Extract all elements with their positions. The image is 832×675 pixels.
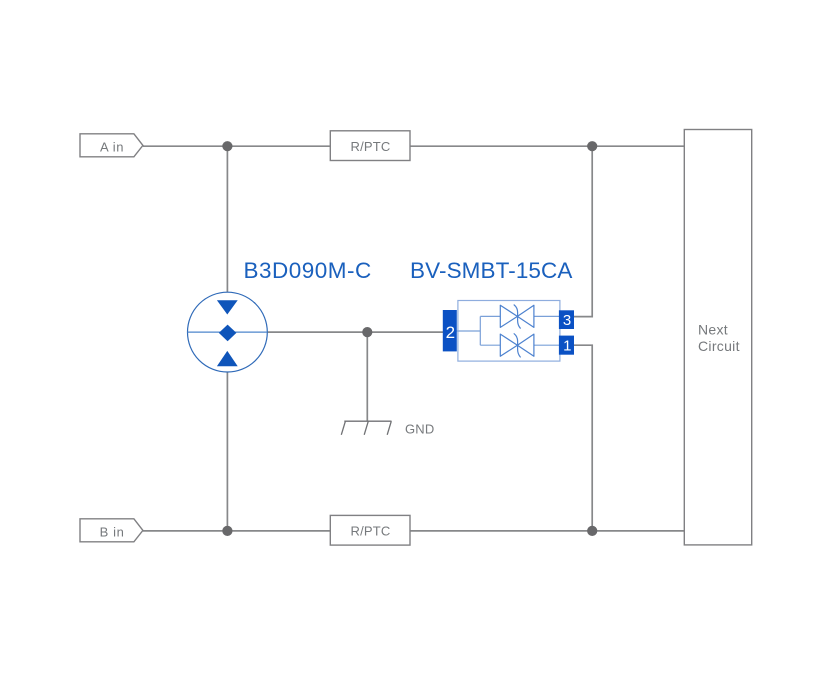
svg-text:B3D090M-C: B3D090M-C	[244, 258, 372, 283]
svg-text:Next: Next	[698, 322, 728, 338]
svg-text:R/PTC: R/PTC	[351, 523, 391, 538]
svg-text:B in: B in	[100, 525, 125, 540]
svg-text:2: 2	[446, 323, 455, 342]
svg-text:Circuit: Circuit	[698, 338, 740, 354]
svg-text:BV-SMBT-15CA: BV-SMBT-15CA	[410, 258, 573, 283]
svg-text:A in: A in	[100, 140, 124, 155]
svg-text:GND: GND	[405, 422, 435, 437]
svg-text:R/PTC: R/PTC	[351, 139, 391, 154]
svg-text:3: 3	[563, 312, 571, 329]
svg-text:1: 1	[563, 337, 571, 354]
